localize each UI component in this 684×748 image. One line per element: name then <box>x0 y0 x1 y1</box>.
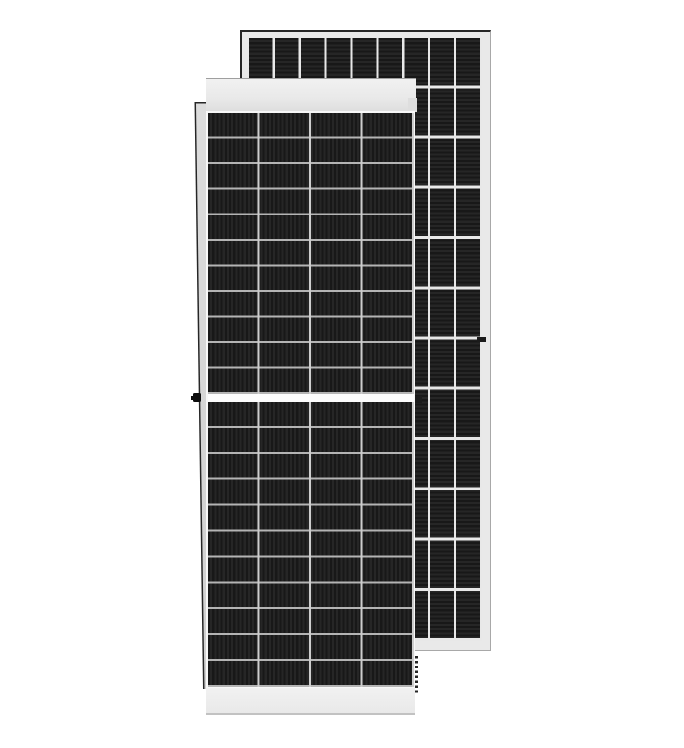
front-panel-lower-cell-half <box>208 402 414 687</box>
front-panel-center-divider <box>208 394 414 403</box>
front-frame-mounting-slot <box>415 396 422 403</box>
front-panel-bottom-frame-cap <box>206 688 415 715</box>
front-panel-cell-area <box>206 111 415 688</box>
front-panel-right-edge-drainage-slots <box>415 656 418 694</box>
front-panel-grounding-lug <box>193 393 201 402</box>
front-panel-upper-cell-half <box>208 113 414 394</box>
product-photo-scene <box>0 0 684 748</box>
front-panel-top-frame-cap-right-step <box>408 98 417 112</box>
front-panel-top-frame-cap <box>206 78 416 111</box>
rear-frame-mounting-slot <box>477 337 486 342</box>
